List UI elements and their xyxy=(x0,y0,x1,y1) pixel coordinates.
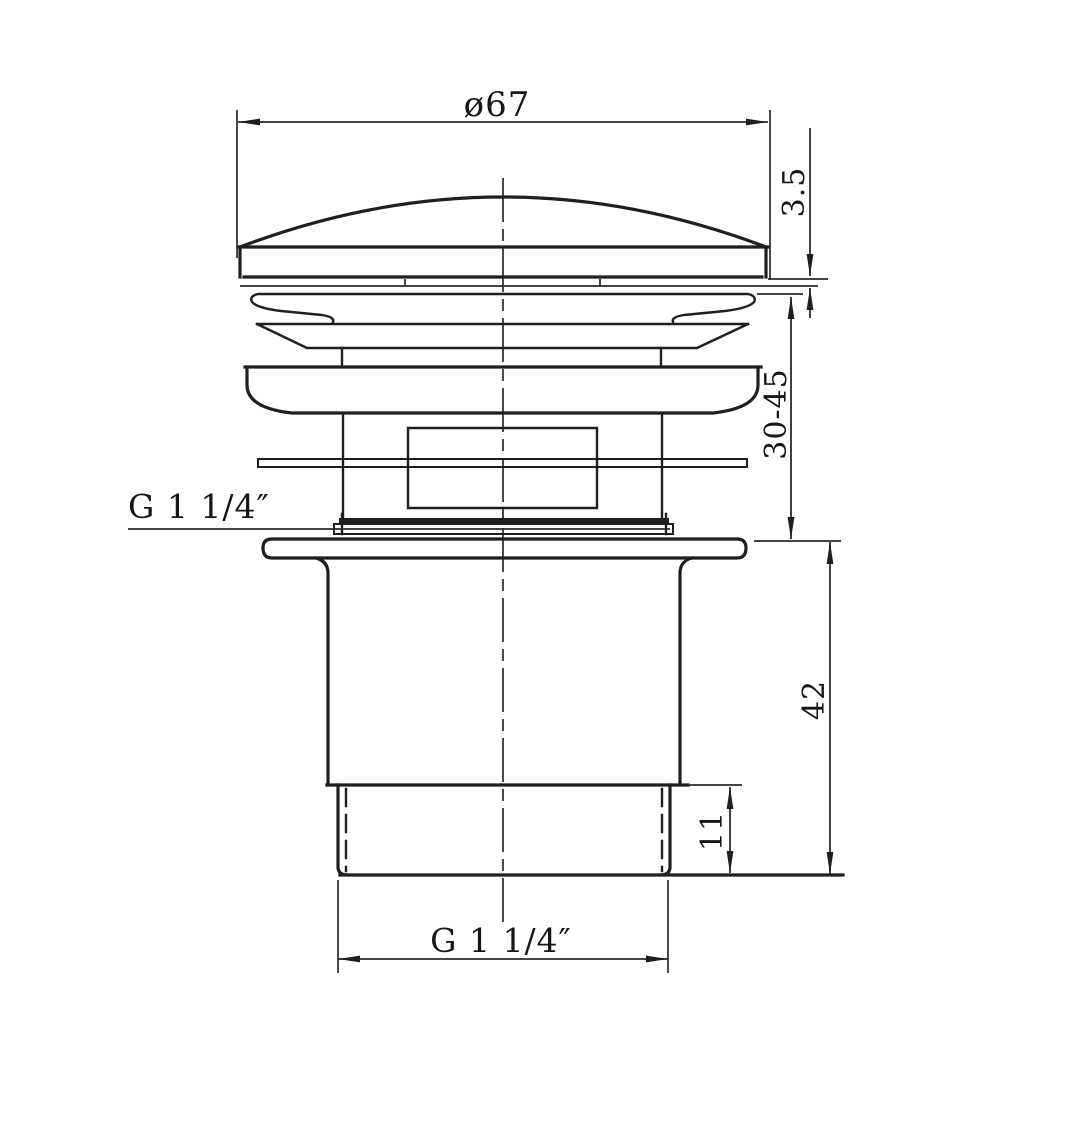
dim-thread-length-label: 11 xyxy=(695,811,730,851)
cap-gap-line xyxy=(240,279,828,294)
dim-body-height-label: 42 xyxy=(797,680,832,720)
technical-drawing-canvas: ø67 3.5 30-45 G 1 1/4″ 42 11 xyxy=(0,0,1074,1126)
dim-install-range-label: 30-45 xyxy=(759,368,794,459)
dim-thread-length: 11 xyxy=(695,787,730,873)
dim-cap-diameter-label: ø67 xyxy=(464,85,531,125)
dim-install-range: 30-45 xyxy=(759,297,794,539)
dim-thread-bottom-label: G 1 1/4″ xyxy=(430,921,572,960)
threaded-tail xyxy=(338,785,843,875)
dim-cap-thickness: 3.5 xyxy=(777,128,812,318)
label-thread-top-text: G 1 1/4″ xyxy=(128,487,270,526)
drawing-sheet: ø67 3.5 30-45 G 1 1/4″ 42 11 xyxy=(0,0,1074,1126)
dim-cap-thickness-label: 3.5 xyxy=(777,167,812,218)
mounting-flange xyxy=(263,539,746,558)
drain-body xyxy=(316,558,742,785)
dim-body-height: 42 xyxy=(754,541,841,874)
